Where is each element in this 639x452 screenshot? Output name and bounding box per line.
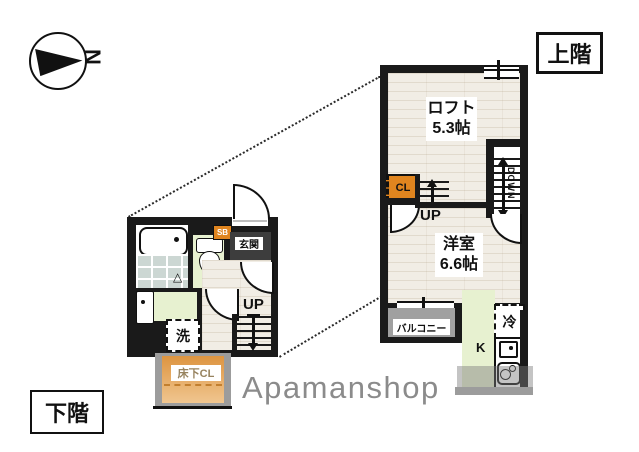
down-label: DOWN xyxy=(506,167,516,200)
lower-up-label: UP xyxy=(243,296,264,313)
shower-drain-icon: △ xyxy=(173,271,182,283)
sink-faucet-dot-icon xyxy=(141,300,145,304)
loft-window-tick xyxy=(497,60,500,80)
down-stairs-wall-left xyxy=(486,139,494,218)
entrance-label: 玄関 xyxy=(235,237,263,250)
bathtub-icon xyxy=(139,227,188,256)
balcony-label: バルコニー xyxy=(393,319,450,335)
floor-plan-canvas: N 上階 下階 △ SB 玄関 UP 洗 床下CL ロフト 5.3帖 CL xyxy=(0,0,639,452)
kitchen-label: K xyxy=(476,340,485,355)
brand-watermark: Apamanshop xyxy=(242,370,440,406)
down-stairs-wall-top xyxy=(486,139,528,147)
loft-name: ロフト xyxy=(427,99,475,119)
down-stairs-arrowhead-up-icon xyxy=(498,157,508,165)
loft-window-midline xyxy=(484,69,519,71)
down-stairs-arrow xyxy=(502,162,505,212)
sink-icon xyxy=(136,291,154,324)
loft-room-label: ロフト 5.3帖 xyxy=(426,97,477,141)
wall-below-closet xyxy=(384,198,416,205)
entrance-door-swing-icon xyxy=(233,184,270,219)
upper-up-label: UP xyxy=(420,207,441,224)
washer-label: 洗 xyxy=(166,319,200,352)
lower-stairs-arrowhead-icon xyxy=(248,343,258,351)
bathtub-drain-icon xyxy=(174,237,179,242)
lower-floor-tag: 下階 xyxy=(30,390,104,434)
kitchen-sink-icon xyxy=(499,341,518,358)
underfloor-closet-label: 床下CL xyxy=(171,365,221,381)
underfloor-closet-baseline xyxy=(153,406,232,409)
western-room-label: 洋室 6.6帖 xyxy=(435,233,483,277)
kitchen-faucet-dot-icon xyxy=(509,346,513,350)
loft-window-icon xyxy=(484,65,519,79)
washroom-area xyxy=(152,292,197,321)
loft-size: 5.3帖 xyxy=(432,119,470,139)
kitchen-gray-baseline xyxy=(455,387,533,395)
entrance-sill xyxy=(233,220,267,222)
western-room-name: 洋室 xyxy=(443,235,475,255)
western-room-size: 6.6帖 xyxy=(440,255,478,275)
underfloor-closet-dash xyxy=(164,384,222,386)
compass-north-label: N xyxy=(79,49,105,65)
lower-stairs-arrow xyxy=(252,316,255,344)
kitchen-gray-overlay xyxy=(457,366,533,388)
balcony-wall-bottom xyxy=(380,337,462,343)
upper-floor-tag: 上階 xyxy=(536,32,603,74)
up-stairs-arrowhead-icon xyxy=(427,179,437,187)
up-stairs-arrow xyxy=(431,184,434,204)
